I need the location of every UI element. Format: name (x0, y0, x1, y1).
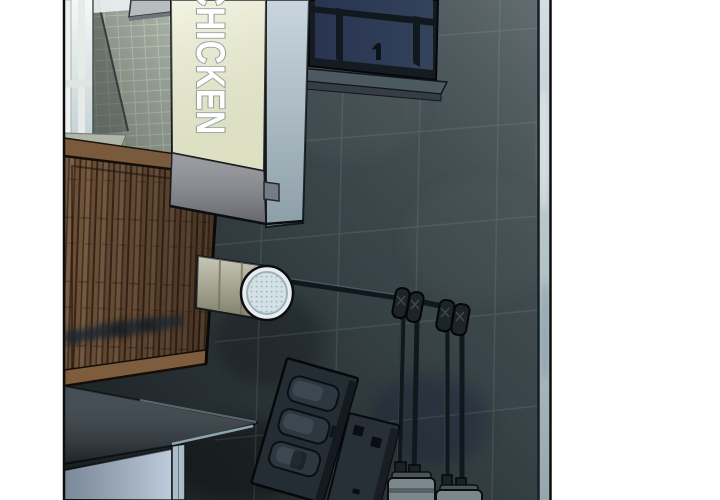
corner-light-strip (538, 0, 551, 500)
comic-panel-illustration: CHICKEN (0, 0, 720, 500)
sign-text: CHICKEN (188, 0, 232, 135)
upper-window (294, 0, 447, 101)
sign-bracket (264, 182, 279, 201)
comic-page: CHICKEN (0, 0, 720, 500)
vertical-pipe-2 (414, 320, 417, 476)
chicken-sign: CHICKEN (170, 0, 309, 227)
